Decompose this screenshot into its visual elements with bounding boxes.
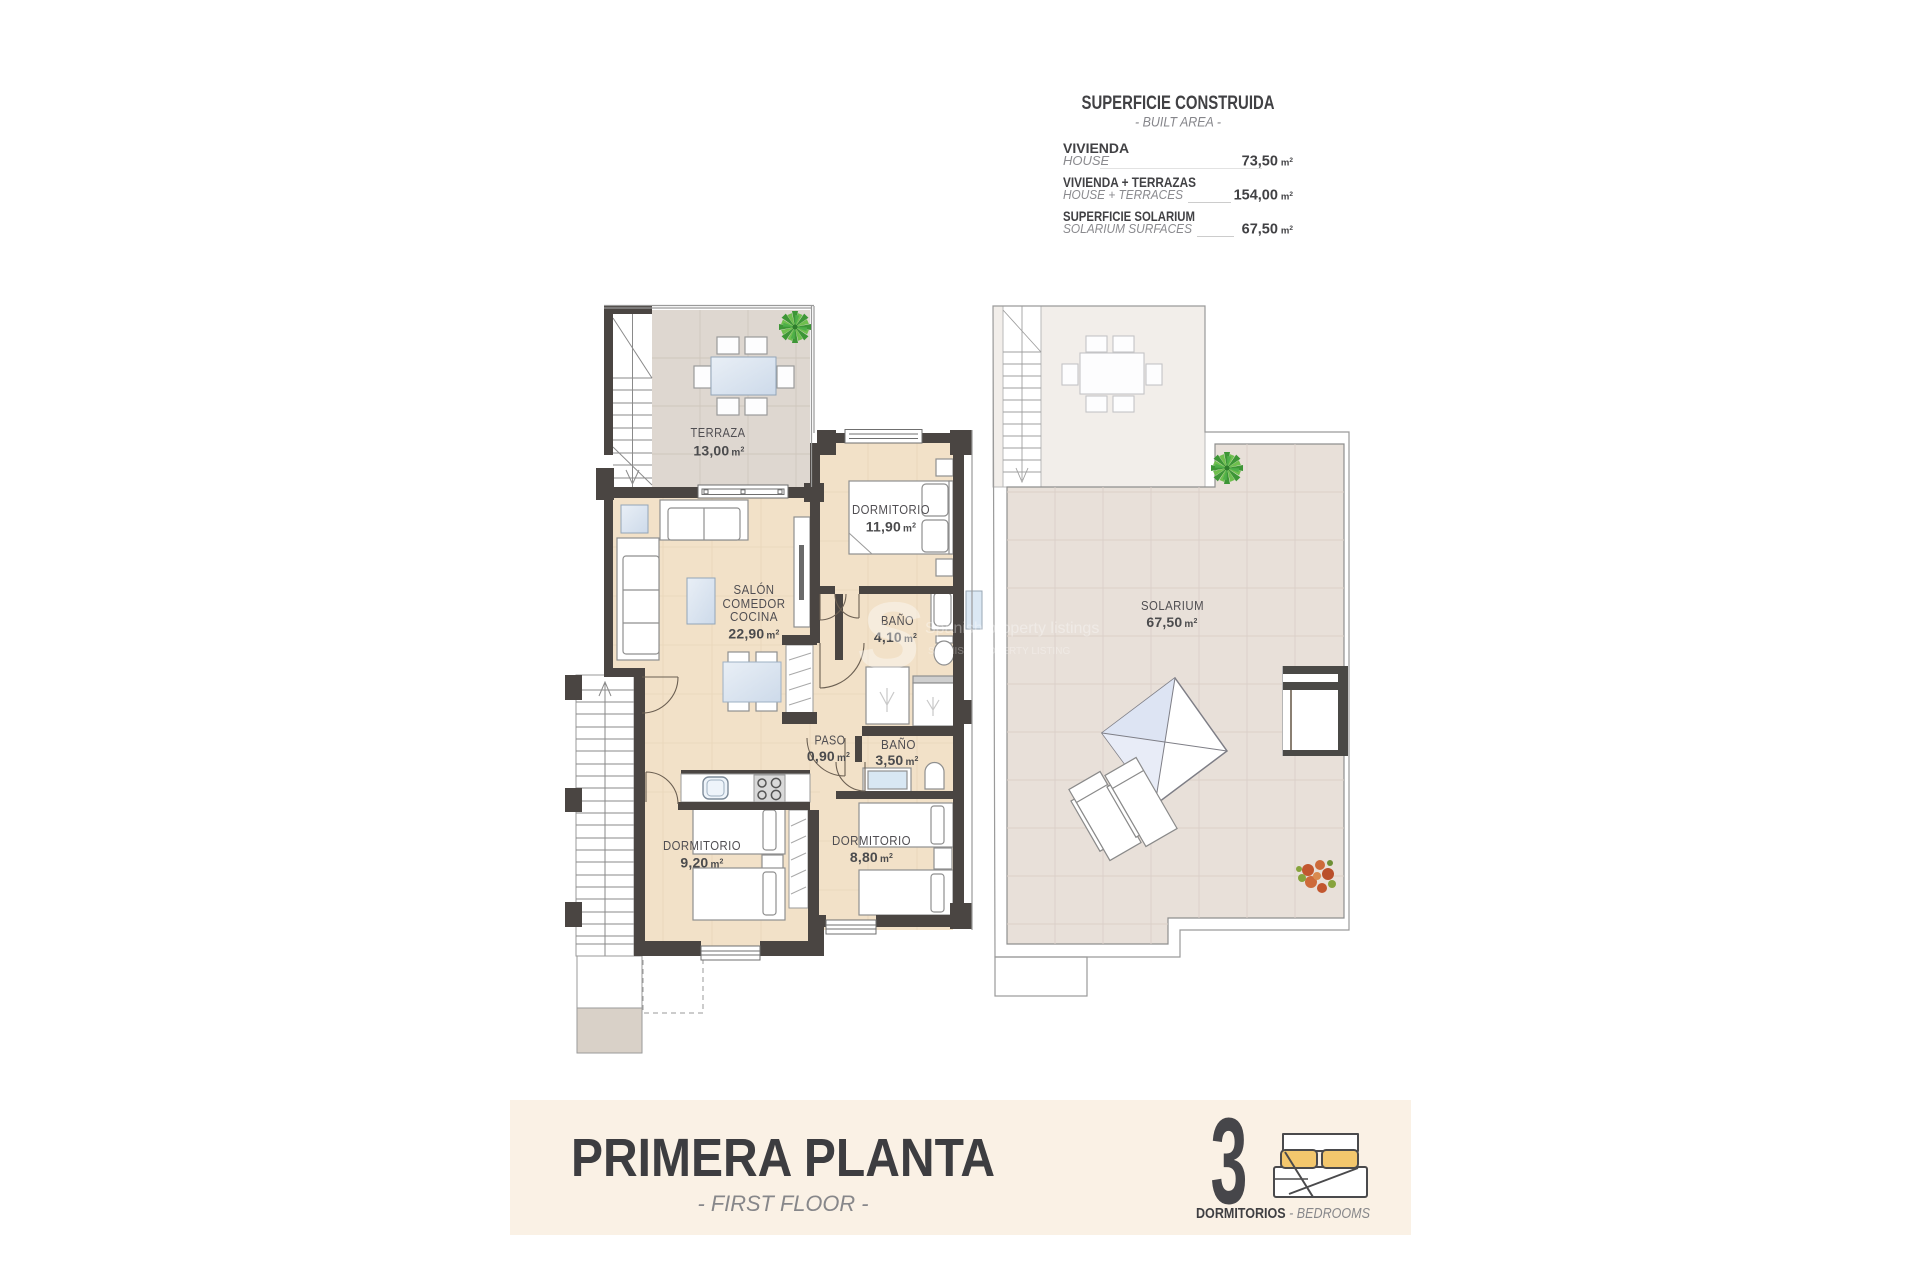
svg-text:PRIMERA PLANTA: PRIMERA PLANTA — [571, 1128, 995, 1188]
svg-text:DORMITORIOS - BEDROOMS: DORMITORIOS - BEDROOMS — [1196, 1206, 1370, 1222]
svg-text:TERRAZA: TERRAZA — [691, 426, 746, 440]
svg-text:SOLARIUM SURFACES: SOLARIUM SURFACES — [1063, 221, 1192, 236]
svg-text:SALÓN: SALÓN — [734, 582, 775, 597]
svg-text:- FIRST FLOOR -: - FIRST FLOOR - — [698, 1191, 869, 1216]
svg-text:DORMITORIO: DORMITORIO — [852, 503, 930, 517]
svg-text:COCINA: COCINA — [730, 610, 778, 624]
svg-text:SOLARIUM: SOLARIUM — [1141, 599, 1204, 613]
svg-text:SPANISH PROPERTY LISTING: SPANISH PROPERTY LISTING — [928, 646, 1070, 657]
svg-text:DORMITORIO: DORMITORIO — [832, 834, 911, 848]
svg-text:PASO: PASO — [815, 734, 846, 748]
svg-text:S: S — [858, 583, 921, 689]
svg-text:Spanish property listings: Spanish property listings — [925, 620, 1099, 637]
svg-text:HOUSE + TERRACES: HOUSE + TERRACES — [1063, 187, 1183, 202]
svg-text:- BUILT AREA -: - BUILT AREA - — [1135, 115, 1221, 130]
svg-text:HOUSE: HOUSE — [1063, 153, 1110, 168]
svg-text:DORMITORIO: DORMITORIO — [663, 839, 741, 853]
svg-text:COMEDOR: COMEDOR — [723, 597, 786, 611]
svg-text:BAÑO: BAÑO — [881, 738, 916, 752]
svg-text:SUPERFICIE CONSTRUIDA: SUPERFICIE CONSTRUIDA — [1082, 93, 1275, 114]
